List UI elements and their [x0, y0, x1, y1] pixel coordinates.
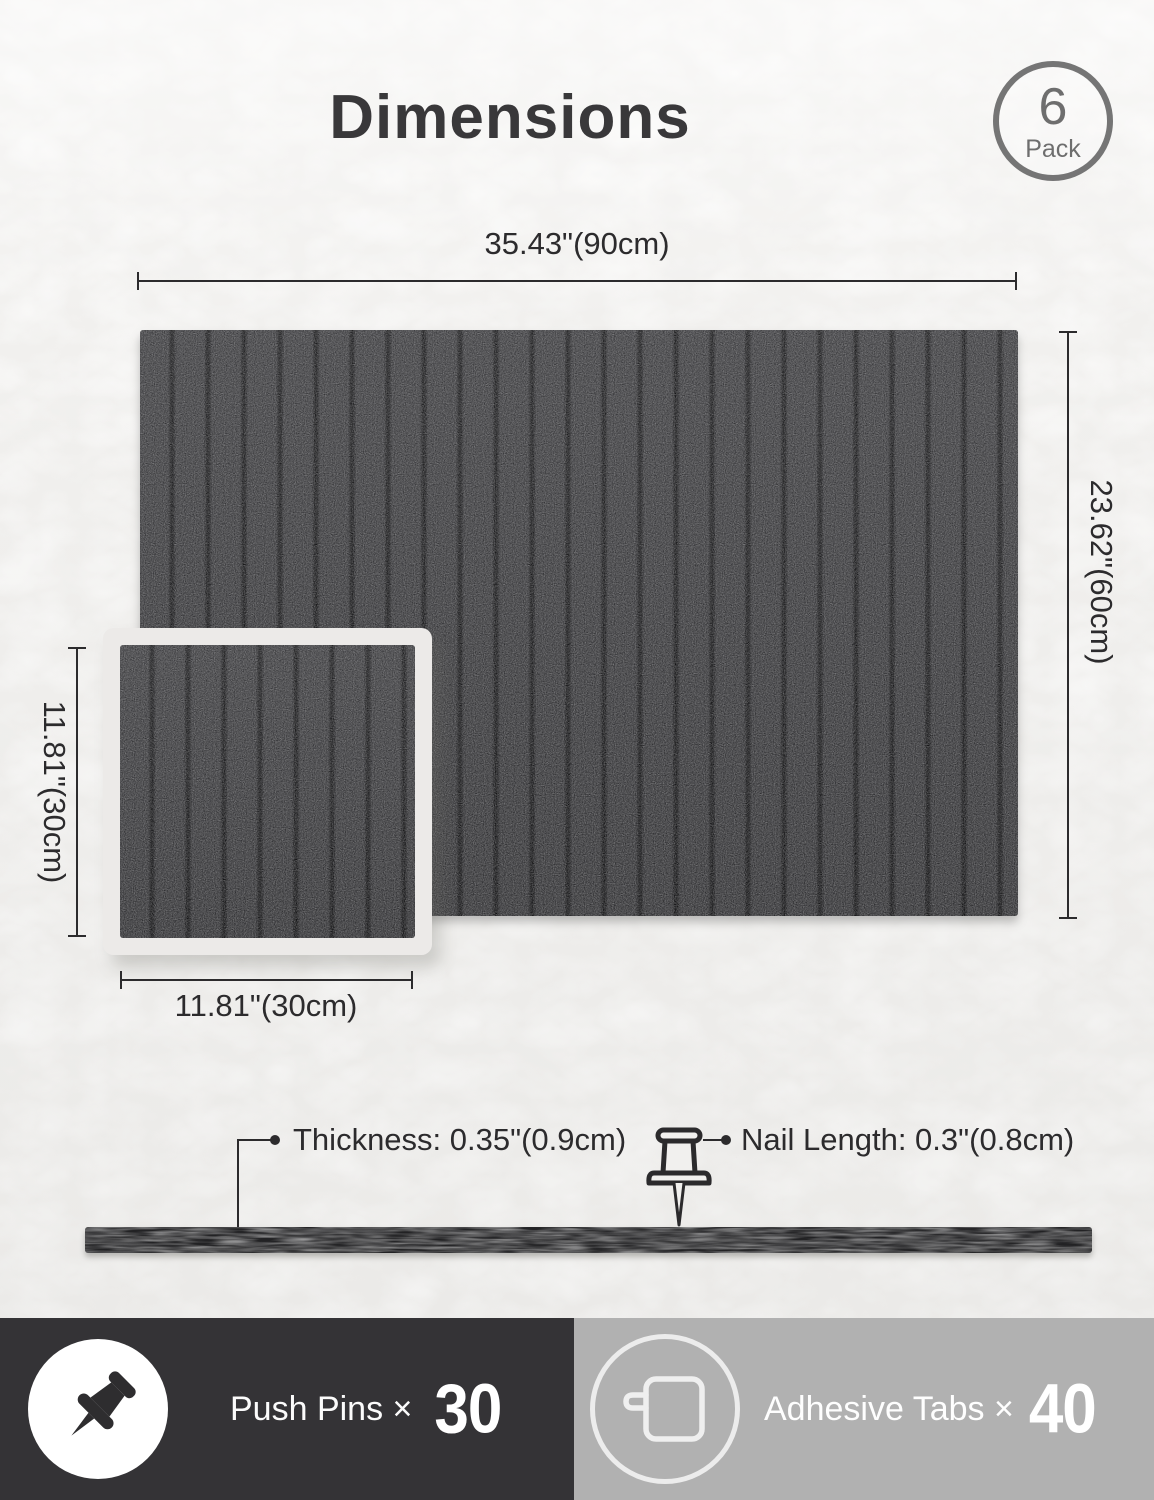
large-panel-height-label: 23.62"(60cm) [1083, 479, 1119, 664]
pack-count: 6 [1039, 81, 1068, 133]
push-pins-label: Push Pins × [230, 1390, 412, 1429]
push-pins-count: 30 [434, 1369, 501, 1449]
nail-leader-dot [721, 1135, 731, 1145]
pushpin-filled-icon [37, 1348, 159, 1470]
push-pins-section: Push Pins × 30 [0, 1318, 574, 1500]
adhesive-tabs-count: 40 [1029, 1369, 1096, 1449]
dimensions-infographic: Dimensions 6 Pack 35.43"(90cm) 23.62"(60… [0, 0, 1154, 1500]
nail-leader-line [703, 1139, 723, 1141]
thickness-label: Thickness: 0.35"(0.9cm) [293, 1122, 626, 1158]
large-panel-height-line [1067, 331, 1069, 919]
adhesive-tab-icon [619, 1363, 711, 1455]
felt-strip-side-view [85, 1227, 1092, 1253]
adhesive-tabs-section: Adhesive Tabs × 40 [574, 1318, 1154, 1500]
pack-count-badge: 6 Pack [993, 61, 1113, 181]
adhesive-tabs-circle [590, 1334, 740, 1484]
thickness-leader-dot [270, 1135, 280, 1145]
push-pins-circle [28, 1339, 168, 1479]
small-panel-width-label: 11.81"(30cm) [175, 988, 358, 1024]
pack-label: Pack [1025, 137, 1081, 162]
nail-length-label: Nail Length: 0.3"(0.8cm) [741, 1122, 1074, 1158]
thickness-leader-line [237, 1140, 239, 1228]
adhesive-tabs-label: Adhesive Tabs × [764, 1390, 1014, 1429]
thickness-leader-line [237, 1139, 273, 1141]
small-panel-height-label: 11.81"(30cm) [36, 701, 72, 884]
included-items-footer: Push Pins × 30 Adhesive Tabs × 40 [0, 1318, 1154, 1500]
large-panel-width-label: 35.43"(90cm) [484, 226, 669, 262]
page-title: Dimensions [0, 82, 1020, 153]
small-panel-width-line [120, 979, 413, 981]
small-felt-panel [120, 645, 415, 938]
large-panel-width-line [137, 280, 1017, 282]
pushpin-outline-icon [642, 1127, 716, 1229]
small-panel-height-line [76, 647, 78, 937]
